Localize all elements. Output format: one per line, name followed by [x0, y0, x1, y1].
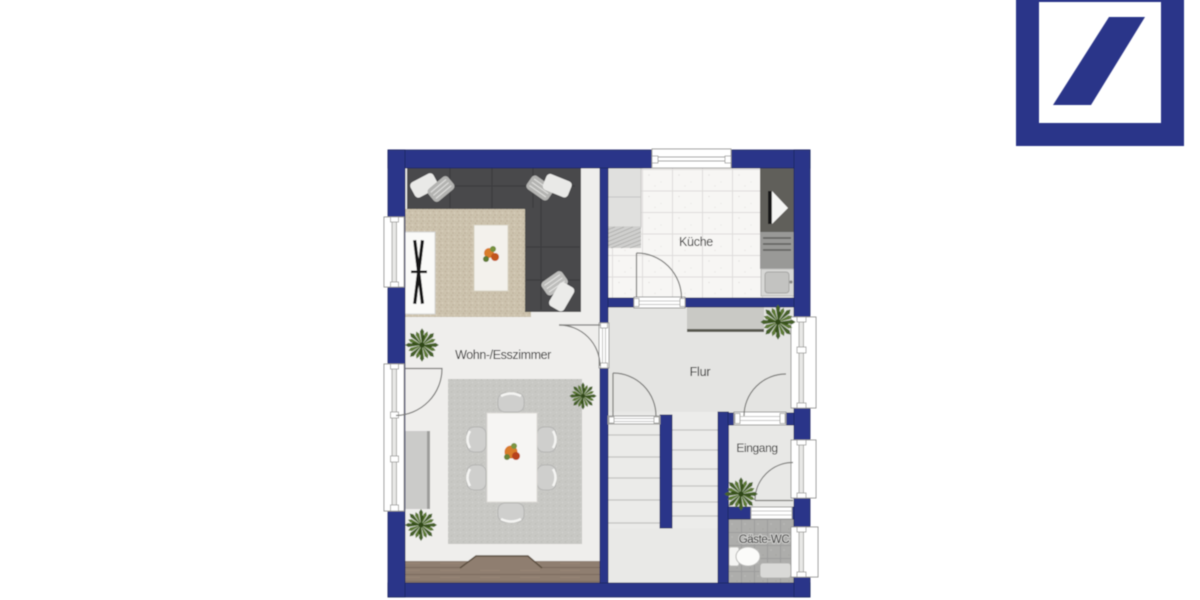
svg-text:Wohn-/Esszimmer: Wohn-/Esszimmer: [455, 348, 551, 362]
svg-text:Küche: Küche: [679, 235, 713, 249]
svg-text:Gäste-WC: Gäste-WC: [739, 534, 790, 546]
svg-text:Eingang: Eingang: [736, 441, 777, 455]
svg-text:Flur: Flur: [690, 365, 711, 379]
